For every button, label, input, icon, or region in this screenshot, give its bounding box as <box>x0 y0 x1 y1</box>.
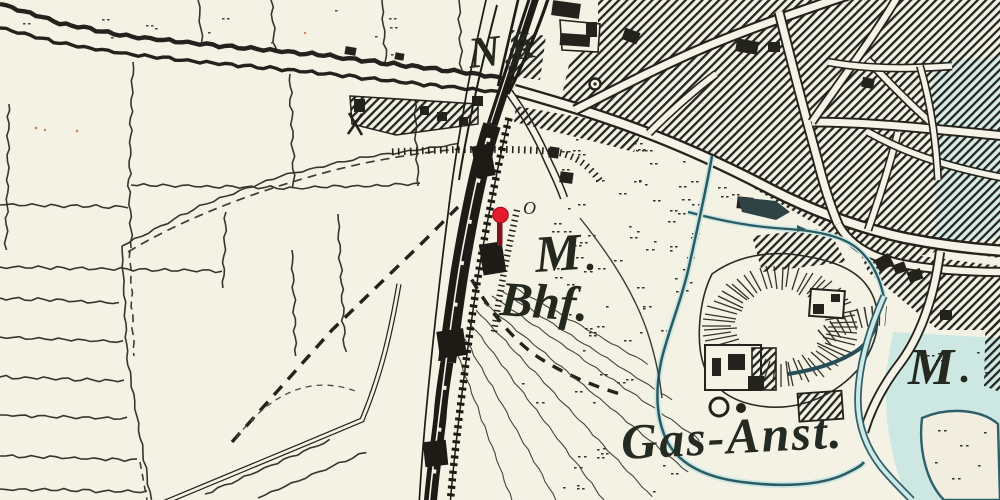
svg-text:Gas-Anst.: Gas-Anst. <box>620 402 845 470</box>
svg-text:O: O <box>523 198 536 218</box>
svg-text:M: M <box>907 339 956 396</box>
svg-text:Bhf.: Bhf. <box>497 271 590 332</box>
